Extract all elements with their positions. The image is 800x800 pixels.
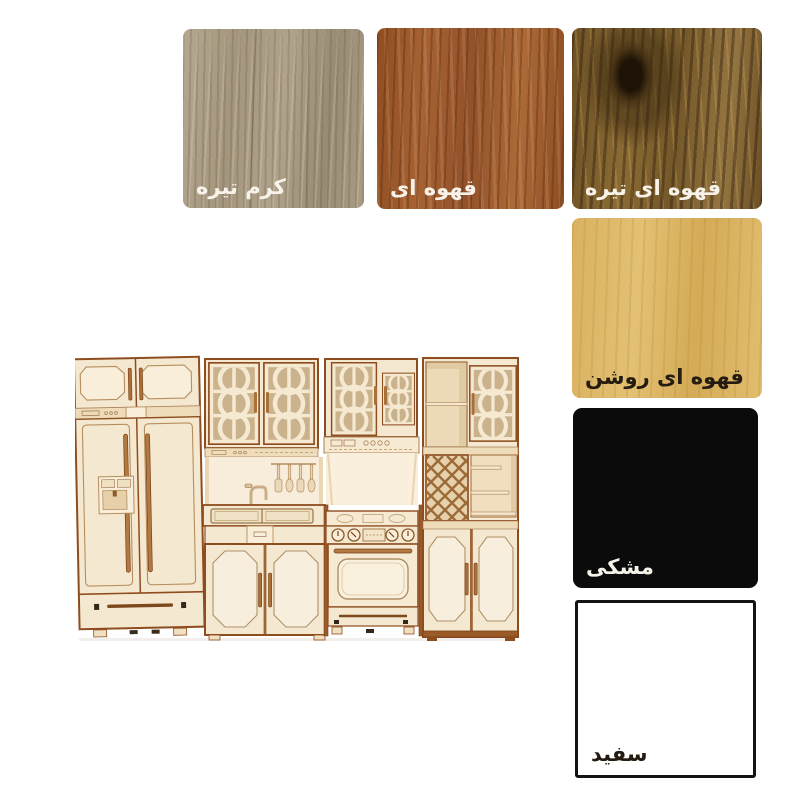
upper-cabinet-right-and-hood [324, 359, 419, 505]
swatch-black[interactable]: مشکی [573, 408, 758, 588]
product-options-collage: کرم تیره قهوه ای قهوه ای تیره قهوه ای رو… [0, 0, 800, 800]
refrigerator [75, 357, 205, 638]
stove-oven [324, 505, 423, 636]
swatch-label: قهوه ای [390, 175, 477, 201]
swatch-light-brown[interactable]: قهوه ای روشن [572, 218, 762, 398]
swatch-dark-cream[interactable]: کرم تیره [183, 29, 364, 208]
swatch-label: قهوه ای روشن [585, 364, 744, 390]
sink-unit [203, 457, 327, 640]
swatch-label: قهوه ای تیره [585, 175, 721, 201]
swatch-white[interactable]: سفید [575, 600, 756, 778]
swatch-brown[interactable]: قهوه ای [377, 28, 564, 209]
upper-cabinet-left [205, 359, 318, 457]
swatch-label: کرم تیره [196, 174, 286, 200]
swatch-label: سفید [591, 741, 647, 767]
kitchen-product-image [75, 355, 520, 643]
swatch-label: مشکی [586, 554, 654, 580]
kitchen-illustration [75, 355, 520, 643]
swatch-dark-brown[interactable]: قهوه ای تیره [572, 28, 762, 209]
